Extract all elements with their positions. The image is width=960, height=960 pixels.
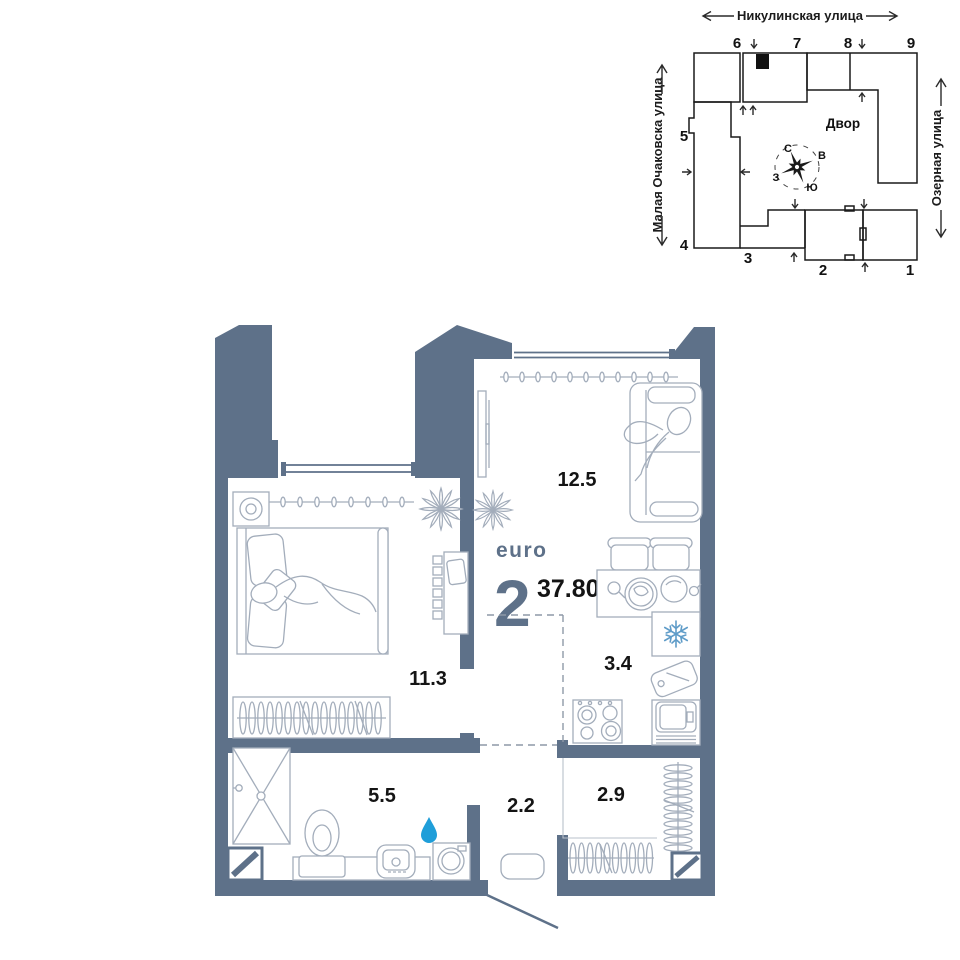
hanging-rail-right <box>664 762 694 852</box>
building-number-2: 2 <box>819 262 827 279</box>
compass-west-label: З <box>773 172 780 184</box>
water-drop-icon <box>421 817 437 843</box>
rooms-count-label: 2 <box>494 566 531 640</box>
street-name-right: Озерная улица <box>929 109 944 206</box>
double-bed <box>237 528 388 654</box>
wall-top-center-mass <box>415 325 512 478</box>
plant-icon <box>420 488 462 530</box>
street-name-left: Малая Очаковска улица <box>650 77 665 233</box>
building-number-9: 9 <box>907 35 915 52</box>
bar-stool <box>608 538 651 570</box>
bathroom: 5.5 <box>228 748 470 880</box>
arrow-up-icon <box>936 79 946 106</box>
highlighted-building <box>743 53 807 102</box>
living-room-area-label: 12.5 <box>558 469 597 491</box>
toilet <box>299 810 345 877</box>
entrance-arrows <box>682 39 868 272</box>
arrow-right-icon <box>866 12 897 21</box>
bathroom-area-label: 5.5 <box>368 785 396 807</box>
apartment-summary: euro 2 37.80 <box>494 539 600 640</box>
desk-shelf <box>433 552 468 634</box>
shower-cabin <box>233 748 290 844</box>
hanging-rail-bottom <box>568 843 654 873</box>
apartment-location-marker <box>756 54 769 69</box>
refrigerator <box>652 612 700 656</box>
total-area-label: 37.80 <box>537 575 600 603</box>
sofa <box>624 383 702 522</box>
wall-left-exterior <box>215 478 228 880</box>
bedroom-area-label: 11.3 <box>409 668 447 690</box>
building-number-1: 1 <box>906 262 914 279</box>
site-plan: Никулинская улица Малая Очаковска улица … <box>640 0 960 290</box>
hallway-area-label: 2.2 <box>507 795 535 817</box>
bar-counter <box>597 570 701 617</box>
hallway: 2.2 <box>487 795 558 928</box>
washing-machine <box>433 843 470 880</box>
street-name-top: Никулинская улица <box>737 8 864 23</box>
vent-shaft <box>672 853 702 880</box>
arrow-left-icon <box>703 12 734 21</box>
building-number-6: 6 <box>733 35 741 52</box>
tv-unit <box>478 391 489 477</box>
stove <box>573 700 622 743</box>
building-number-8: 8 <box>844 35 852 52</box>
apartment-type-label: euro <box>496 539 548 562</box>
wall-bottom <box>215 880 488 896</box>
living-room: 12.5 <box>474 372 702 529</box>
bedroom: 11.3 <box>233 488 468 738</box>
compass-south-label: Ю <box>806 182 817 194</box>
buildings-outline <box>689 53 917 260</box>
building-number-3: 3 <box>744 250 752 267</box>
wardrobe-area-label: 2.9 <box>597 784 625 806</box>
entry-door-swing <box>487 895 558 928</box>
building-number-7: 7 <box>793 35 801 52</box>
washbasin <box>377 845 415 878</box>
wall-top-left-tower <box>215 325 278 478</box>
courtyard-label: Двор <box>826 116 860 131</box>
arrow-down-icon <box>936 210 946 237</box>
kitchen-area-label: 3.4 <box>604 653 633 675</box>
building-number-4: 4 <box>680 237 689 254</box>
cutting-board <box>649 659 699 699</box>
building-number-5: 5 <box>680 128 688 145</box>
compass-north-label: С <box>784 143 792 155</box>
floorplan-page: Никулинская улица Малая Очаковска улица … <box>0 0 960 960</box>
vent-shaft <box>228 848 262 880</box>
kitchen-sink <box>652 700 700 745</box>
wardrobe: 2.9 <box>563 758 702 880</box>
apartment-floor-plan: 11.3 <box>200 315 730 945</box>
nightstand-with-lamp <box>233 492 269 526</box>
compass-east-label: В <box>818 150 826 162</box>
bench <box>501 854 544 879</box>
closet-hanging-rail <box>233 697 390 738</box>
compass-rose-icon: С В З Ю <box>773 143 826 194</box>
bar-stool <box>650 538 692 570</box>
plant-icon <box>474 491 513 530</box>
building-numbers: 6 7 8 9 5 4 3 2 1 <box>680 35 915 279</box>
